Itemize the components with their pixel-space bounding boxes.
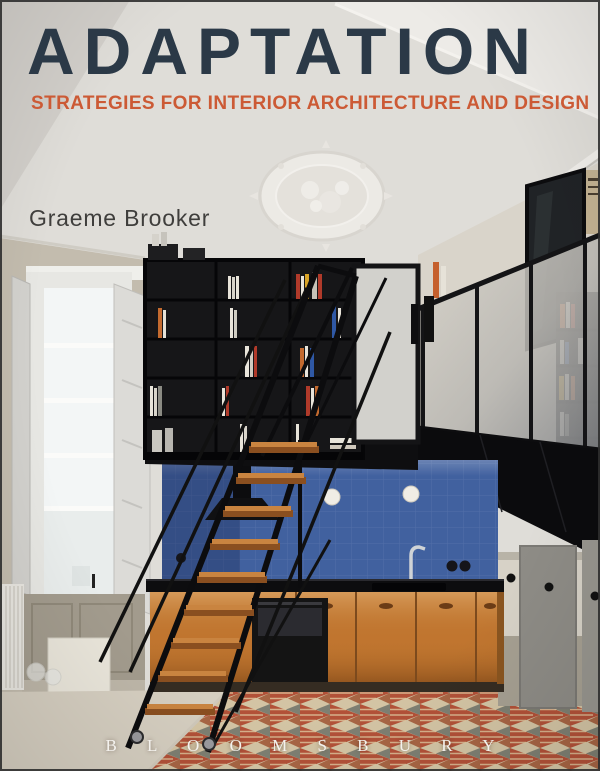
window-handle-icon (92, 574, 95, 588)
author-name: Graeme Brooker (29, 205, 210, 232)
book-subtitle: STRATEGIES FOR INTERIOR ARCHITECTURE AND… (31, 93, 590, 115)
sink (372, 583, 446, 591)
publisher-logotype: B L O O M S B U R Y (0, 736, 600, 756)
door-knob-icon (545, 583, 554, 592)
wall-hook-icon (507, 574, 516, 583)
cover-photo-interior (0, 0, 600, 771)
book-title: ADAPTATION (27, 18, 540, 84)
window (12, 266, 150, 614)
book-cover: ADAPTATION STRATEGIES FOR INTERIOR ARCHI… (0, 0, 600, 771)
socket-icon (447, 561, 458, 572)
radiator-icon (2, 584, 24, 690)
socket-icon (460, 561, 471, 572)
wall-light-icon (403, 486, 419, 502)
gray-door (520, 546, 576, 708)
wall-hook-icon (591, 592, 600, 601)
right-wall (498, 540, 600, 712)
